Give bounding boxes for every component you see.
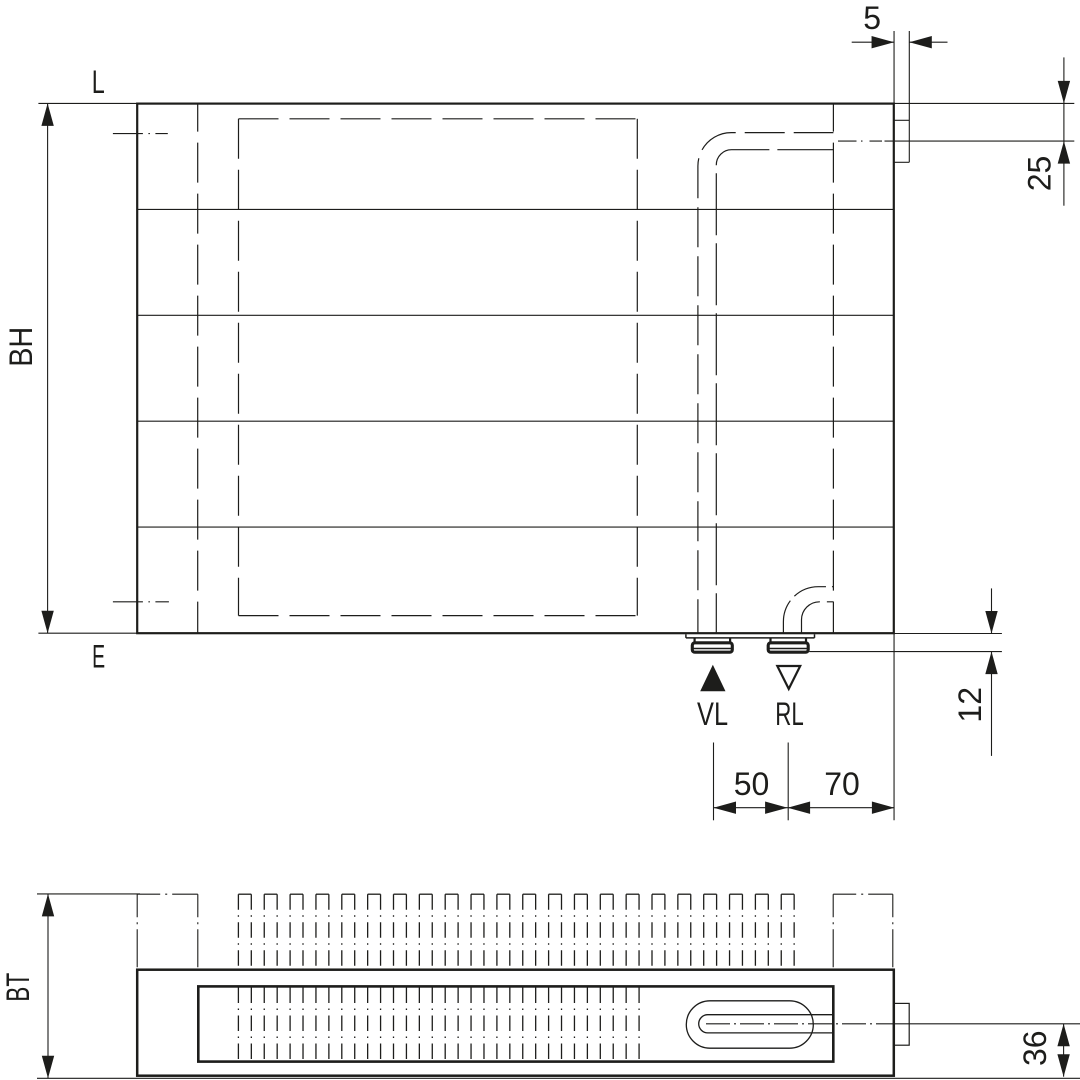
svg-text:RL: RL <box>775 696 804 732</box>
svg-text:36: 36 <box>1017 1030 1053 1066</box>
svg-text:25: 25 <box>1022 156 1058 192</box>
svg-text:70: 70 <box>824 766 860 802</box>
svg-text:BT: BT <box>0 973 36 1002</box>
svg-text:12: 12 <box>952 687 988 723</box>
svg-text:50: 50 <box>734 766 770 802</box>
svg-text:L: L <box>92 64 105 100</box>
svg-text:E: E <box>92 639 105 675</box>
svg-text:VL: VL <box>697 696 728 732</box>
svg-text:BH: BH <box>3 327 39 367</box>
svg-text:5: 5 <box>863 0 881 36</box>
